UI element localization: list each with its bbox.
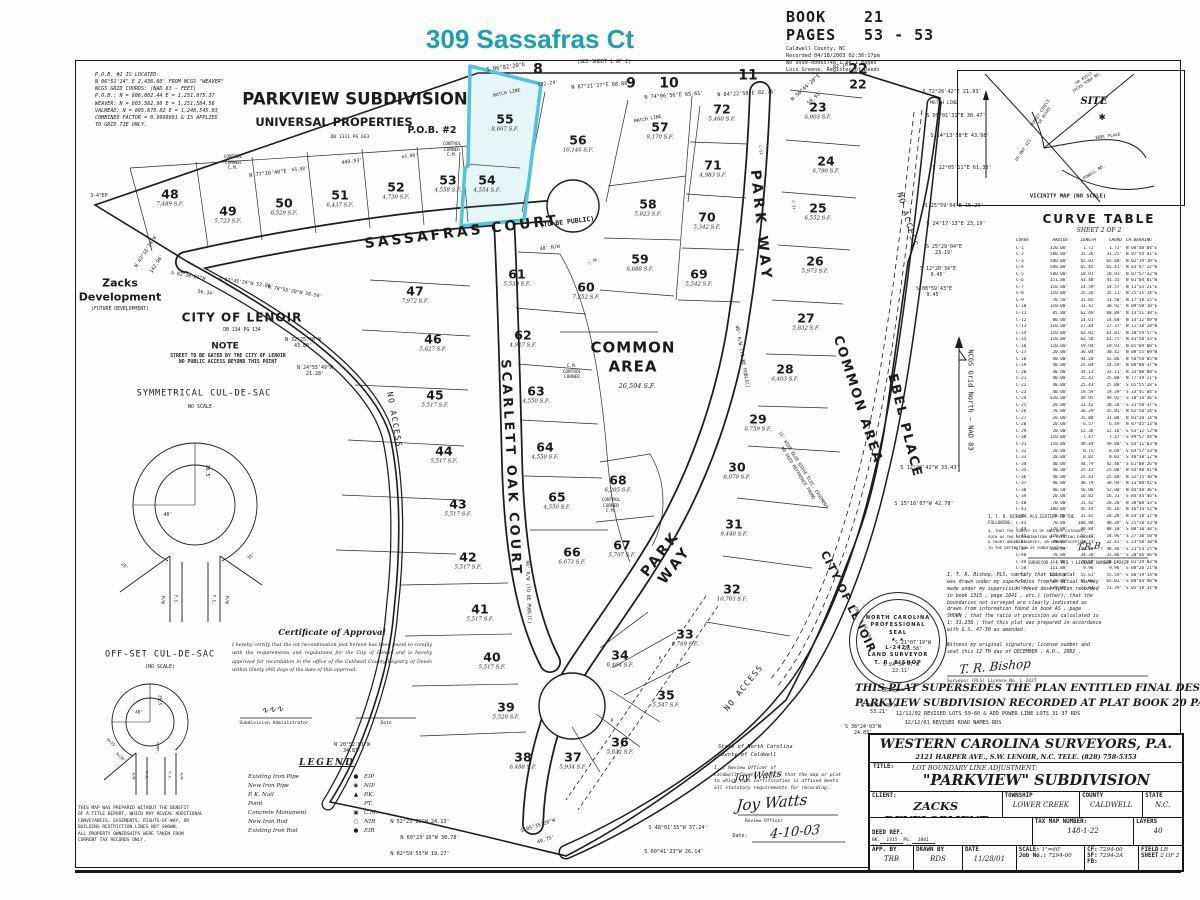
corner-number-8: 8 <box>533 61 543 79</box>
lot-49: 495,723 S.F. <box>215 204 242 225</box>
curve-table-subtitle: SHEET 2 OF 2 <box>1016 227 1182 234</box>
map-label: ∿∿∿ <box>260 704 284 717</box>
legend-item: Point·PT. <box>248 800 406 809</box>
lot-23: 236,003 S.F. <box>805 100 832 121</box>
approved-by: TRB <box>872 855 911 863</box>
lot-51: 516,437 S.F. <box>327 188 354 209</box>
lot-61: 615,539 S.F. <box>504 267 531 288</box>
zacks-development-label: Zacks Development <box>79 276 161 304</box>
lot-29: 296,759 S.F. <box>745 412 772 433</box>
lot-56: 5610,146 S.F. <box>563 133 593 154</box>
map-label: C-31 <box>790 200 796 210</box>
map-label: C-51 <box>757 145 763 155</box>
lot-68: 686,205 S.F. <box>605 473 632 494</box>
lot-45: 455,517 S.F. <box>422 388 449 409</box>
map-label: 40' <box>163 512 172 518</box>
title-sub: LOT BOUNDARY LINE ADJUSTMENT: <box>894 764 1179 772</box>
lot-48: 487,489 S.F. <box>157 187 184 208</box>
map-label: P <box>659 657 662 663</box>
pob2-label: P.O.B. #2 <box>407 125 456 137</box>
ncgs-grid-north-label: NCGS Grid North — NAD 83 <box>966 349 975 450</box>
lot-62: 624,927 S.F. <box>510 328 537 349</box>
legend-item: P. K. Nail▲P.K. <box>248 791 406 800</box>
curve-table-title: CURVE TABLE <box>1016 212 1182 226</box>
lot-31: 319,440 S.F. <box>721 517 748 538</box>
tax-map-label: TAX MAP NUMBER: <box>1035 819 1131 825</box>
map-label: (SEE SHEET 1 OF 2) <box>577 59 631 65</box>
approval-body: I hereby certify that the lot recombinat… <box>232 642 432 676</box>
corner-number-11: 11 <box>738 67 757 85</box>
map-label: MATCH LINE <box>930 101 958 107</box>
lot-26: 265,973 S.F. <box>802 254 829 275</box>
map-label: NO SCALE <box>188 404 212 410</box>
legend-item: New Iron Rod○NIR <box>248 818 406 827</box>
map-label: F.C. <box>211 595 216 605</box>
lot-65: 654,550 S.F. <box>544 490 571 511</box>
lot-52: 524,730 S.F. <box>383 180 410 201</box>
legend-item: Existing Iron Rod●EIR <box>248 827 406 836</box>
map-label: S 12°20'34"E 9.45' <box>920 266 956 279</box>
map-label: CONTROL CORNER C.M. <box>602 498 621 515</box>
lot-34: 346,464 S.F. <box>607 648 634 669</box>
subdivision-subtitle: UNIVERSAL PROPERTIES <box>255 115 412 129</box>
legend-title: LEGEND <box>248 758 406 768</box>
map-label: S 15°16'07"W 42.78' <box>894 501 953 508</box>
lot-55: 558,667 S.F. <box>492 112 519 133</box>
map-label: S 60°41'23"W 26.14' <box>644 849 703 856</box>
lot-47: 477,972 S.F. <box>402 284 429 305</box>
layers-label: LAYERS <box>1136 819 1180 825</box>
lot-42: 425,517 S.F. <box>455 550 482 571</box>
lot-54: 544,554 S.F. <box>474 173 501 194</box>
map-label: N 69°23'16"W 30.78' <box>400 835 459 842</box>
city-of-lenoir-label: CITY OF LENOIR <box>182 311 303 326</box>
legend: LEGEND Existing Iron Pipe●EIPNew Iron Pi… <box>248 758 406 836</box>
revision-note-2: 12/12/01 REVISED ROAD NAMES RDS <box>868 720 1038 727</box>
map-label: 3-4"EP <box>90 194 107 200</box>
lot-39: 395,520 S.F. <box>493 700 520 721</box>
lot-28: 286,403 S.F. <box>772 362 799 383</box>
approval-title: Certificate of Approval <box>232 628 432 638</box>
tax-map-value: 148-1-22 <box>1035 827 1131 835</box>
title-block: WESTERN CAROLINA SURVEYORS, P.A. 2121 HA… <box>868 733 1184 872</box>
map-label: N 82°59'53"W 19.27' <box>390 851 449 858</box>
legend-item: Concrete Monument▣C.M. <box>248 809 406 818</box>
pages-label: PAGES <box>786 26 864 44</box>
map-label: P <box>611 719 614 725</box>
county-label: COUNTY <box>1082 793 1140 799</box>
township-value: LOWER CREEK <box>1005 801 1078 809</box>
map-label: F.C. <box>144 771 149 780</box>
map-label: DB 134 PG 134 <box>223 328 261 334</box>
map-label: N 20°52'01"W 34.81' <box>334 742 370 755</box>
map-label: 40' <box>135 709 143 714</box>
job-number: 7294-00 <box>1048 853 1071 859</box>
supersede-line-2: PARKVIEW SUBDIVISION RECORDED AT PLAT BO… <box>855 697 1179 709</box>
sheet-value: 2 OF 2 <box>1160 853 1179 859</box>
map-label: S 25°29'04"E 23.19' <box>926 244 962 257</box>
pob-note: P.O.B. #2 IS LOCATED: N 06°51'14" E 2,43… <box>95 72 224 129</box>
map-label: 26.5 <box>157 695 162 705</box>
sf-number: 7294-2A <box>1099 853 1123 859</box>
client-name: ZACKS DEVELOPMENT <box>872 799 1000 817</box>
vicinity-map-box <box>957 70 1185 206</box>
lot-38: 386,488 S.F. <box>510 750 537 771</box>
lot-53: 534,558 S.F. <box>435 173 462 194</box>
lot-35: 355,547 S.F. <box>653 688 680 709</box>
map-label: Date <box>380 721 391 727</box>
lot-25: 256,552 S.F. <box>805 201 832 222</box>
surveyor-witness: Witness my original signature; license n… <box>947 642 1090 656</box>
drawn-by: RDS <box>916 855 960 863</box>
lot-32: 3210,703 S.F. <box>717 582 747 603</box>
lot-72: 725,460 S.F. <box>709 102 736 123</box>
map-label: (NO SCALE) <box>145 664 175 670</box>
surveyor-certify-heading: I, T. R. BISHOP, PLS CERTIFY TO THE FOLL… <box>988 514 1074 526</box>
lot-50: 506,529 S.F. <box>271 196 298 217</box>
pages-value: 53 - 53 <box>864 26 934 44</box>
corner-number-10: 10 <box>659 75 678 93</box>
layers-value: 40 <box>1136 827 1180 835</box>
state-label: STATE <box>1145 793 1180 799</box>
book-label: BOOK <box>786 8 864 26</box>
surveyor-seal: NORTH CAROLINAPROFESSIONALSEAL★ ★L-2427L… <box>849 592 947 690</box>
symmetrical-culdesac-title: SYMMETRICAL CUL-DE-SAC <box>137 389 272 400</box>
lot-57: 579,170 S.F. <box>647 120 674 141</box>
supersede-line-1: THIS PLAT SUPERSEDES THE PLAN ENTITLED F… <box>855 682 1179 694</box>
lot-41: 415,517 S.F. <box>467 602 494 623</box>
lot-67: 675,707 S.F. <box>609 538 636 559</box>
lot-70: 705,342 S.F. <box>694 210 721 231</box>
certificate-of-approval: Certificate of Approval I hereby certify… <box>232 628 432 676</box>
surveyor-license-line: SURVEYOR , ( PLS ) LICENSE NUMBER L-2427 <box>1028 560 1129 566</box>
map-label: F.C. <box>173 595 178 605</box>
map-label: N 24°55'49"W 21.28' <box>297 365 333 378</box>
plat-sheet: 309 Sassafras Ct BOOK21 PAGES53 - 53 Cal… <box>0 0 1200 900</box>
title-report-disclaimer: THIS MAP WAS PREPARED WITHOUT THE BENEFI… <box>78 806 203 844</box>
lot-71: 714,983 S.F. <box>700 158 727 179</box>
map-label: Review Officer <box>745 819 783 825</box>
lot-64: 644,550 S.F. <box>532 440 559 461</box>
lot-63: 634,550 S.F. <box>523 384 550 405</box>
page-title: 309 Sassafras Ct <box>380 24 680 55</box>
firm-name: WESTERN CAROLINA SURVEYORS, P.A. <box>870 737 1182 752</box>
map-label: R/W <box>224 596 229 604</box>
review-state-county: State of North Carolina County of Caldwe… <box>718 744 793 759</box>
lot-40: 405,517 S.F. <box>479 650 506 671</box>
lot-27: 275,832 S.F. <box>793 311 820 332</box>
lot-58: 585,023 S.F. <box>635 197 662 218</box>
lot-24: 246,790 S.F. <box>813 154 840 175</box>
subdivision-title: PARKVIEW SUBDIVISION <box>242 90 467 111</box>
surveyor-certification-body: I, T. R. Bishop, PLS, certify that this … <box>947 572 1102 634</box>
legend-item: Existing Iron Pipe●EIP <box>248 773 406 782</box>
firm-address: 2121 HARPER AVE., S.W. LENOIR, N.C. TELE… <box>870 753 1182 761</box>
map-label: N 32°25'40"W 43.80' <box>285 337 321 350</box>
map-label: R/W <box>131 773 136 780</box>
note-heading: NOTE <box>211 341 238 352</box>
county-value: CALDWELL <box>1082 801 1140 809</box>
map-label: R/W <box>160 596 165 604</box>
legend-item: New Iron Pipe◉NIP <box>248 782 406 791</box>
map-label: S 48°01'55"W 37.24' <box>648 825 707 832</box>
lot-66: 666,673 S.F. <box>559 545 586 566</box>
date-value: 11/28/01 <box>965 855 1014 863</box>
lot-43: 435,517 S.F. <box>445 497 472 518</box>
township-label: TOWNSHIP <box>1005 793 1078 799</box>
map-label: (FUTURE DEVELOPMENT) <box>91 307 149 313</box>
lot-37: 375,934 S.F. <box>560 750 587 771</box>
map-label: 26,594 S.F. <box>619 382 656 390</box>
lot-36: 365,832 S.F. <box>607 735 634 756</box>
lot-60: 607,252 S.F. <box>573 280 600 301</box>
common-area-label: COMMON AREA <box>591 338 676 376</box>
title-main: "PARKVIEW" SUBDIVISION <box>894 772 1179 789</box>
state-value: N.C. <box>1145 801 1180 809</box>
surveyor-certify-item: 4. THAT THE SURVEY IS OF ANOTHER CATEGOR… <box>988 528 1096 550</box>
map-label: R/W <box>179 773 184 780</box>
curve-table-header: CURVERADIUSLENGTHCHORDCH.BEARING <box>1016 238 1182 245</box>
map-label: STREET TO BE GATED BY THE CITY OF LENOIR… <box>170 354 286 366</box>
deed-ref-label: DEED REF. <box>872 830 903 836</box>
deed-ref-values: BK.1315PG.1041 BK. PG. BK. PG. <box>872 838 1030 845</box>
revision-note-1: 12/12/02 REVISED LOTS 59-60 & ADD POWER … <box>868 711 1108 718</box>
subdivision-deed-ref: DB 1311 PG 663 <box>331 135 370 141</box>
map-label: S 24°17'13"E 23.19' <box>926 221 985 228</box>
review-officer-certification: I, , Review Officer of Caldwell County, … <box>714 766 841 793</box>
lot-59: 596,688 S.F. <box>627 252 654 273</box>
map-label: Subdivision Administrator <box>239 721 308 727</box>
map-label: F.C. <box>167 771 172 780</box>
lot-46: 465,627 S.F. <box>420 332 447 353</box>
book-value: 21 <box>864 8 884 26</box>
lot-69: 695,542 S.F. <box>686 267 713 288</box>
map-label: CONTROL CORNER C.M. <box>443 142 462 159</box>
title-label: TITLE: <box>873 764 894 790</box>
map-label: PVMT. <box>155 742 160 753</box>
map-label: CONTROL CORNER C.M. <box>224 155 243 172</box>
map-label: Date: <box>732 833 747 839</box>
lot-22: 22 <box>849 77 866 92</box>
map-label: 26.5' <box>204 464 210 479</box>
offset-culdesac-title: OFF-SET CUL-DE-SAC <box>105 650 215 661</box>
map-label: C.M. CONTROL CORNER <box>563 364 582 381</box>
lot-30: 308,070 S.F. <box>724 460 751 481</box>
lot-33: 339,769 S.F. <box>672 627 699 648</box>
lot-44: 445,517 S.F. <box>431 444 458 465</box>
map-label: S 08°59'43"E 9.45' <box>916 286 952 299</box>
